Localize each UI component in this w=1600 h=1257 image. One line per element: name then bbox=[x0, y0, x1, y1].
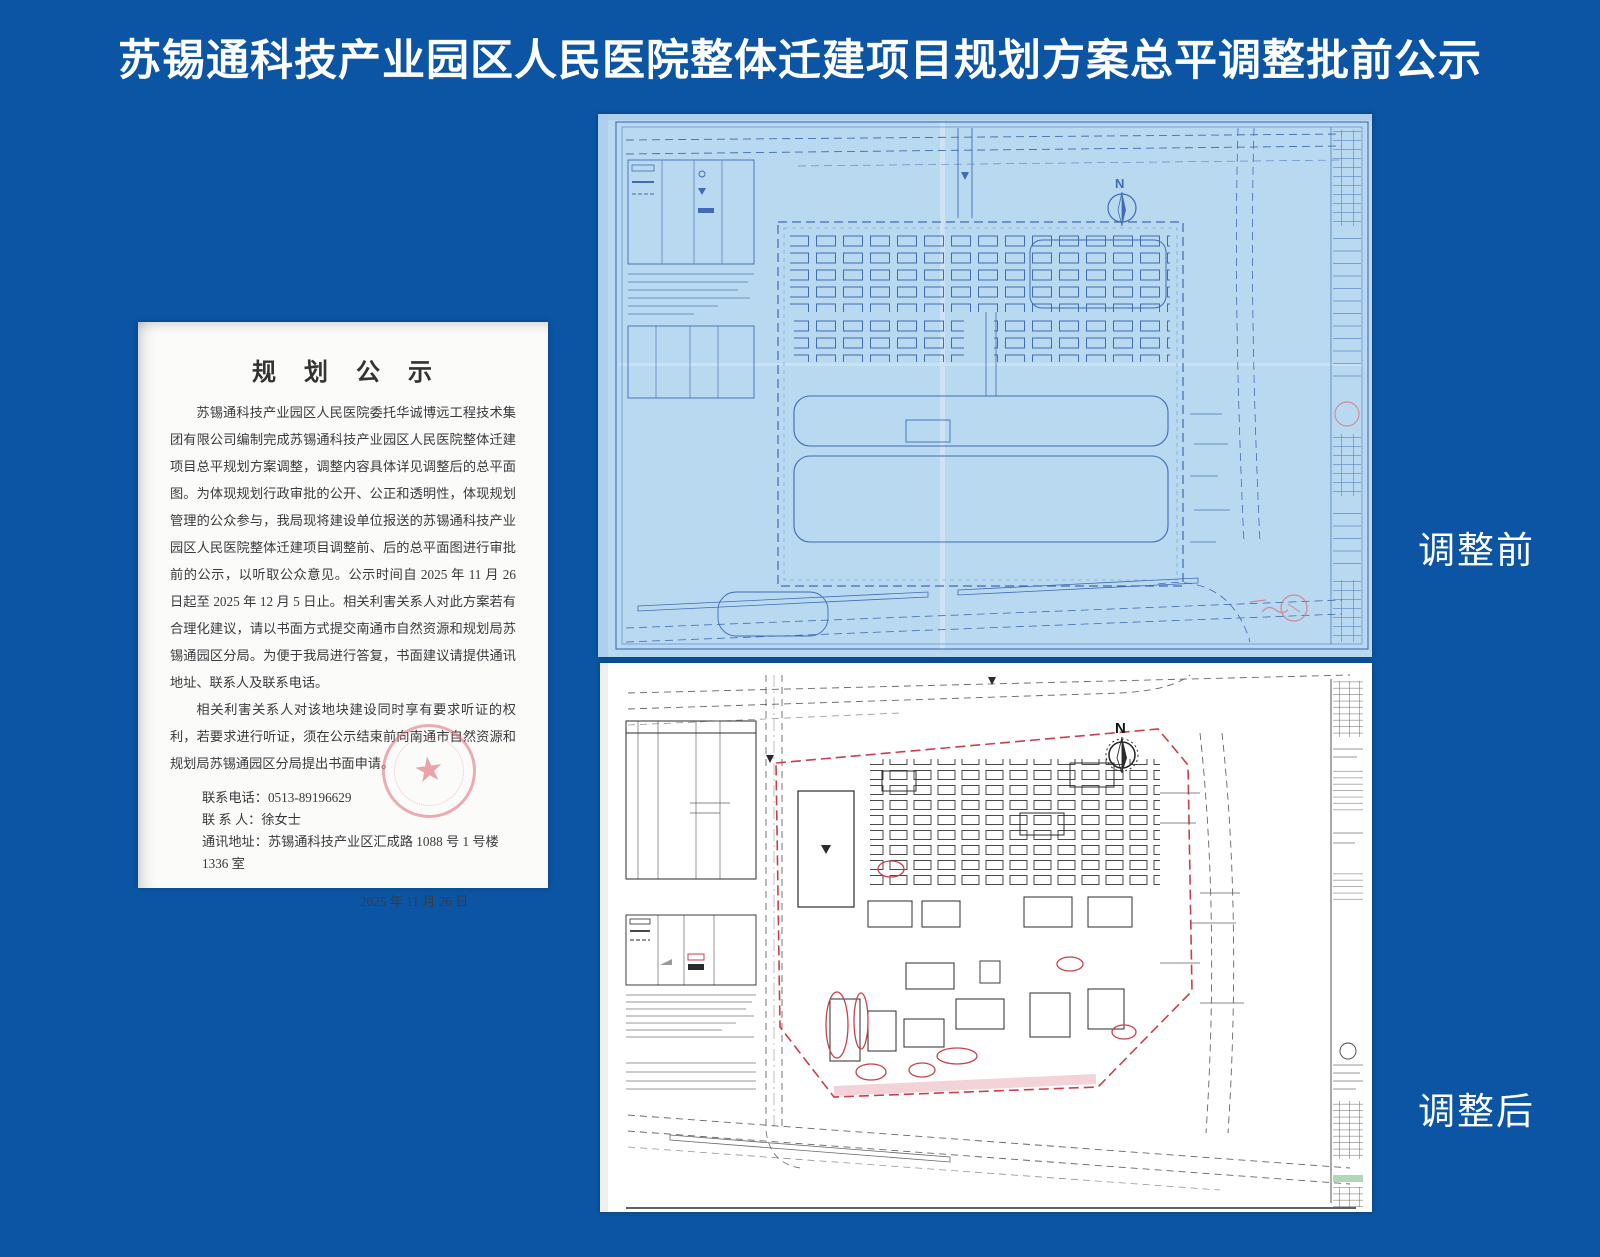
roads bbox=[626, 128, 1342, 642]
approval-stamp-icon bbox=[1335, 402, 1359, 426]
contact-phone-value: 0513-89196629 bbox=[268, 790, 352, 805]
contact-person-label: 联 系 人： bbox=[202, 812, 261, 827]
north-label: N bbox=[1115, 176, 1124, 191]
site-plan-before-drawing: N bbox=[598, 114, 1372, 657]
north-label: N bbox=[1115, 720, 1126, 737]
notice-date: 2025 年 11 月 26 日 bbox=[360, 891, 510, 910]
label-before-adjustment: 调整前 bbox=[1418, 520, 1535, 574]
hatched-area bbox=[906, 963, 954, 989]
flow-arrow-icon bbox=[766, 755, 774, 763]
red-stamp bbox=[1250, 595, 1307, 621]
notice-paragraph-1: 苏锡通科技产业园区人民医院委托华诚博远工程技术集团有限公司编制完成苏锡通科技产业… bbox=[170, 399, 516, 696]
flow-arrow-icon bbox=[961, 172, 969, 180]
notice-heading: 规 划 公 示 bbox=[170, 352, 516, 387]
legend-table bbox=[628, 160, 754, 264]
contact-person-line: 联 系 人：徐女士 bbox=[202, 809, 516, 831]
building-cluster bbox=[790, 234, 1170, 312]
paper-edge-shade bbox=[598, 114, 608, 657]
green-row bbox=[1333, 1175, 1363, 1182]
institute-logo-icon bbox=[1340, 1043, 1356, 1059]
site-plan-after-drawing: N bbox=[600, 663, 1372, 1212]
sheet-frame bbox=[616, 122, 1368, 649]
internal-ring-road bbox=[794, 396, 1168, 446]
hospital-compound bbox=[778, 222, 1183, 586]
paper-edge-shade bbox=[600, 663, 608, 1212]
fold-line bbox=[940, 122, 945, 649]
sheet-frame bbox=[626, 679, 1356, 1208]
label-after-adjustment: 调整后 bbox=[1418, 1081, 1535, 1135]
site-plan-after: N bbox=[600, 663, 1372, 1212]
north-compass-icon: N bbox=[1108, 176, 1136, 226]
site-plan-before: N bbox=[598, 114, 1372, 657]
page-title: 苏锡通科技产业园区人民医院整体迁建项目规划方案总平调整批前公示 bbox=[0, 26, 1600, 88]
contact-address-line: 通讯地址：苏锡通科技产业区汇成路 1088 号 1 号楼 1336 室 bbox=[202, 831, 516, 875]
planning-notice-document: 规 划 公 示 苏锡通科技产业园区人民医院委托华诚博远工程技术集团有限公司编制完… bbox=[138, 322, 548, 888]
contact-person-value: 徐女士 bbox=[261, 812, 301, 827]
title-block-strip bbox=[1333, 681, 1363, 1207]
contact-phone-label: 联系电话： bbox=[202, 790, 268, 805]
roads bbox=[628, 675, 1350, 1190]
indicator-table bbox=[628, 326, 754, 398]
notes-block bbox=[628, 274, 754, 314]
indicator-table bbox=[626, 721, 756, 879]
seal-star-icon: ★ bbox=[412, 752, 447, 790]
notes-block bbox=[626, 995, 756, 1089]
annotation-marks bbox=[1190, 414, 1230, 542]
legend-table bbox=[626, 915, 756, 985]
contact-address-label: 通讯地址： bbox=[202, 834, 268, 849]
title-block-strip bbox=[1331, 127, 1361, 644]
building-cluster bbox=[798, 759, 1160, 1061]
change-marker-ellipses bbox=[826, 861, 1136, 1080]
